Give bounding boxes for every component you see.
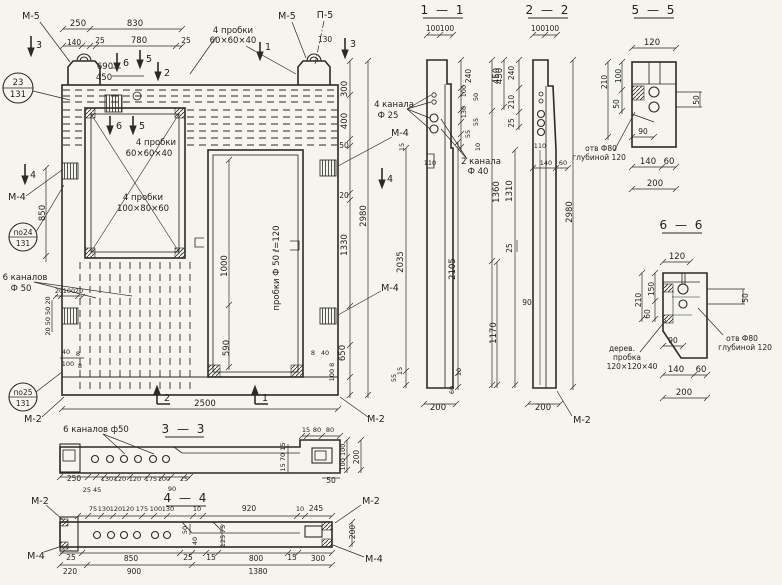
- series-number: 131: [10, 90, 26, 100]
- channel-note: 6 каналов: [3, 273, 48, 283]
- dim-label: 245: [309, 504, 324, 513]
- dim-label: 8: [311, 349, 315, 357]
- embed-callout: М-2: [31, 496, 49, 507]
- cut-number: 1: [262, 393, 268, 404]
- dim-label: 100: [460, 85, 468, 97]
- dim-label: 175: [136, 505, 148, 513]
- section-6-6: [639, 259, 745, 401]
- cut-number: 2: [164, 68, 170, 79]
- dim-label: 1380: [248, 567, 267, 576]
- dim-label: 15: [206, 553, 216, 562]
- dim-label: 780: [131, 36, 147, 46]
- plug-note: 120×120×40: [607, 362, 658, 371]
- dim-label: 100: [150, 505, 162, 513]
- cut-number: 6: [116, 121, 122, 132]
- dim-label: 60: [643, 309, 652, 319]
- dim-label: 800: [249, 554, 264, 563]
- dim-label: 15: [398, 143, 406, 151]
- dim-label: 40: [62, 348, 70, 356]
- dim-label: 1170: [489, 322, 499, 344]
- dim-label: 90: [522, 298, 532, 307]
- dim-label: 120: [669, 252, 685, 262]
- hole-f80: [649, 87, 659, 97]
- dim-label: 100: [62, 360, 74, 368]
- dim-label: 900: [127, 567, 142, 576]
- dim-label: 60: [559, 159, 567, 167]
- dim-label: 830: [127, 19, 143, 29]
- dim-label: 15: [287, 553, 297, 562]
- dim-label: 2035: [396, 251, 406, 273]
- dim-label: 120: [644, 38, 660, 48]
- section-markers: [22, 36, 385, 404]
- channel-lines: [80, 262, 190, 392]
- dim-label: 50: [472, 93, 480, 101]
- dim-label: 8: [78, 362, 82, 370]
- section-2-2: [494, 32, 576, 416]
- embed-callout: М-4: [381, 283, 399, 294]
- dim-label: 130: [318, 35, 333, 44]
- dim-label: 55: [390, 374, 398, 382]
- dim-label: 75: [89, 505, 97, 513]
- dim-label: 120: [129, 475, 141, 483]
- dimension-lines: [605, 45, 702, 192]
- dim-label: 100 8: [328, 363, 336, 382]
- dim-label: 140: [67, 38, 82, 47]
- plug-note: 60×60×40: [126, 149, 173, 159]
- embed-callout: М-5: [278, 11, 296, 22]
- edge-embed: [320, 160, 336, 176]
- plug-note: 4 пробки: [136, 138, 176, 148]
- dim-label: 25: [183, 553, 193, 562]
- dim-label: 690: [97, 62, 113, 72]
- dim-label: 2980: [565, 201, 575, 223]
- dim-label: 25: [505, 243, 514, 253]
- dim-label: 130: [460, 106, 468, 118]
- embed-callout: М-2: [573, 415, 591, 426]
- dim-label: 850: [124, 554, 139, 563]
- section-1-1: [403, 32, 495, 407]
- channel-note: 2 канала: [461, 157, 501, 167]
- hole-f80: [649, 102, 659, 112]
- dim-label: 120: [110, 505, 122, 513]
- embed-callout: М-4: [391, 128, 409, 139]
- channel-note: Ф 50: [11, 284, 32, 294]
- section-4-4-labels: М-2 4 — 4 М-2 75 130 120 120 175 100 130…: [27, 491, 383, 576]
- plug-note: 100×80×60: [117, 204, 169, 214]
- section-title: 6 — 6: [660, 218, 705, 232]
- edge-embed: [62, 308, 78, 324]
- dim-label: 240: [464, 69, 473, 84]
- dim-label: 450: [495, 68, 505, 84]
- blueprint-sheet: М-5 3 250 830 140 25 780 25 690 6 5 2 45…: [0, 0, 782, 585]
- corner-plug: [291, 365, 303, 377]
- corner-plug: [208, 365, 220, 377]
- dim-label: 140: [640, 157, 656, 167]
- dim-label: 50: [692, 95, 701, 105]
- cut-number: 5: [146, 54, 152, 65]
- dim-label: 10: [296, 505, 304, 513]
- dim-label: 10: [193, 505, 201, 513]
- cut-number: 1: [265, 42, 271, 53]
- cut-number: 4: [387, 174, 393, 185]
- dim-label: 1330: [340, 234, 350, 256]
- channel-note: Ф 40: [468, 167, 489, 177]
- section-title: 1 — 1: [421, 3, 466, 17]
- dim-label: 1000: [220, 255, 230, 277]
- plug-note: дерев.: [609, 344, 635, 353]
- hole-note: отв Ф80: [726, 334, 758, 343]
- channel-f40: [430, 114, 438, 122]
- channel-f40: [430, 125, 438, 133]
- hole-note: отв Ф80: [585, 144, 617, 153]
- channel-note: Ф 25: [378, 111, 399, 121]
- dim-label: 20: [339, 191, 349, 200]
- edge-embed: [320, 308, 336, 324]
- dim-label: 300: [311, 554, 326, 563]
- leader-lines: [26, 21, 467, 417]
- section-3-3: [57, 433, 364, 480]
- dim-label: 220: [63, 567, 78, 576]
- dim-label: 150: [647, 282, 656, 297]
- dim-label: 20 50 50 20: [44, 296, 52, 335]
- dim-label: 100: [531, 24, 546, 33]
- embed-callout: М-4: [365, 554, 383, 565]
- dim-label: 60: [664, 157, 675, 167]
- dim-label: 100 100: [339, 444, 347, 471]
- channel-note: 4 канала: [374, 100, 414, 110]
- section-5-5: [605, 45, 702, 192]
- dim-label: 100: [545, 24, 560, 33]
- dim-label: 25: [95, 36, 105, 45]
- dim-label: 130: [162, 505, 174, 513]
- dim-label: 100: [440, 24, 455, 33]
- elevation-labels: М-5 3 250 830 140 25 780 25 690 6 5 2 45…: [3, 10, 501, 425]
- dim-label: 200: [430, 403, 446, 413]
- dim-label: 90: [638, 127, 648, 136]
- dim-label: 100: [158, 475, 170, 483]
- dim-label: 55: [464, 130, 472, 138]
- corner-plug: [175, 248, 185, 258]
- dim-label: 90: [668, 336, 678, 345]
- channel-note: 6 каналов ф50: [63, 425, 129, 435]
- plug-note: 4 пробки: [123, 193, 163, 203]
- dim-label: 25: [180, 475, 188, 483]
- dim-label: 40: [321, 349, 329, 357]
- dim-label: 25: [507, 118, 516, 128]
- dim-label: 50: [741, 293, 750, 303]
- dim-label: 15: [302, 426, 310, 434]
- dim-label: 10: [474, 143, 482, 151]
- cut-number: 5: [139, 121, 145, 132]
- dim-label: 210: [507, 95, 516, 110]
- panel-drawing: М-5 3 250 830 140 25 780 25 690 6 5 2 45…: [0, 0, 782, 585]
- lifting-hook-right: [307, 54, 321, 61]
- section-title: 3 — 3: [162, 422, 207, 436]
- dim-label: 25: [181, 36, 191, 45]
- hole-note: глубиной 120: [572, 153, 626, 162]
- position-number: по24: [13, 228, 32, 237]
- dim-label: 250: [67, 474, 82, 483]
- corner-plug: [85, 108, 95, 118]
- dim-label: 125: [219, 535, 227, 547]
- embed-plate: [105, 95, 122, 112]
- section-title: 2 — 2: [526, 3, 571, 17]
- dim-label: 140: [540, 159, 552, 167]
- elevation-view: [3, 21, 467, 417]
- dim-label: 120: [114, 475, 126, 483]
- dim-label: 590: [222, 340, 232, 356]
- section-6-6-labels: 6 — 6 120 150 210 60 50 90 отв Ф80 глуби…: [607, 218, 772, 398]
- plug-note: 60×60×40: [210, 36, 257, 46]
- dimension-lines: [494, 32, 576, 416]
- dim-label: 200: [676, 388, 692, 398]
- cut-number: 4: [30, 170, 36, 181]
- dim-label: 2980: [359, 205, 369, 227]
- dim-label: 200: [352, 450, 361, 465]
- dim-label: 175: [145, 475, 157, 483]
- embed-callout: М-5: [22, 11, 40, 22]
- dim-label: 100: [426, 24, 441, 33]
- dim-label: 200: [348, 525, 357, 540]
- hatch-band: [63, 90, 337, 145]
- dim-label: 8: [76, 350, 80, 358]
- position-number: 23: [13, 78, 24, 88]
- dim-label: 10: [455, 368, 463, 376]
- section-3-3-labels: 6 каналов ф50 3 — 3 15 80 80 15 70 15 10…: [63, 422, 361, 494]
- dim-label: 210: [600, 75, 609, 90]
- dim-label: 140: [668, 365, 684, 375]
- corner-plug: [85, 248, 95, 258]
- lifting-block-right: [298, 61, 330, 85]
- dim-label: 15 70 15: [279, 443, 287, 472]
- plug-note: 4 пробки: [213, 26, 253, 36]
- section-1-1-labels: 1 — 1 100 100 240 100 50 130 55 55 10 45…: [390, 3, 502, 413]
- dim-label: 210: [634, 293, 643, 308]
- plug-note: пробки Ф 50 ℓ=120: [272, 225, 282, 310]
- section-title: 4 — 4: [164, 491, 209, 505]
- dim-label: 2105: [448, 258, 458, 280]
- dim-label: 130: [98, 505, 110, 513]
- cut-number: 6: [123, 58, 129, 69]
- plug-note: пробка: [613, 353, 641, 362]
- position-number: по25: [13, 388, 32, 397]
- lifting-hook-left: [77, 54, 91, 61]
- hole-f80: [678, 284, 688, 294]
- embed-callout: П-5: [317, 10, 334, 21]
- cut-number: 3: [36, 40, 42, 51]
- dim-label: 80: [326, 426, 334, 434]
- dimension-lines: [639, 259, 745, 401]
- dim-label: 250: [70, 19, 86, 29]
- series-number: 131: [16, 399, 31, 408]
- dim-label: 400: [340, 113, 350, 129]
- corner-plug: [175, 108, 185, 118]
- dim-label: 75: [219, 525, 227, 533]
- embed-callout: М-2: [367, 414, 385, 425]
- dimension-lines: [403, 32, 495, 407]
- dim-label: 130: [101, 475, 113, 483]
- dim-label: 920: [242, 504, 257, 513]
- dim-label: 100: [63, 287, 75, 295]
- dim-label: 120: [122, 505, 134, 513]
- cut-number: 2: [164, 393, 170, 404]
- dim-label: 2500: [194, 399, 216, 409]
- dim-label: 50: [339, 141, 349, 150]
- dim-label: 110: [424, 159, 436, 167]
- dim-label: 25: [66, 553, 76, 562]
- hole-note: глубиной 120: [718, 343, 772, 352]
- dim-label: 850: [38, 205, 48, 221]
- dim-label: 40: [191, 537, 199, 545]
- dim-label: 200: [535, 403, 551, 413]
- series-number: 131: [16, 239, 31, 248]
- dim-label: 200: [647, 179, 663, 189]
- dim-label: 1310: [505, 180, 515, 202]
- edge-embed: [62, 163, 78, 179]
- dim-label: 50: [181, 526, 189, 534]
- dim-label: 55: [472, 118, 480, 126]
- dim-label: 20: [75, 287, 83, 295]
- dim-label: 50: [326, 476, 336, 485]
- dim-label: 25 45: [83, 486, 102, 494]
- cut-number: 3: [350, 39, 356, 50]
- embed-callout: М-4: [27, 551, 45, 562]
- dim-label: 450: [96, 73, 112, 83]
- panel-outline: [62, 85, 338, 395]
- dim-label: 110: [534, 142, 546, 150]
- dim-label: 50: [612, 99, 621, 109]
- dim-label: 100: [614, 69, 623, 84]
- dim-label: 60: [696, 365, 707, 375]
- dim-label: 80: [313, 426, 321, 434]
- dim-label: 1360: [492, 181, 502, 203]
- embed-callout: М-2: [24, 414, 42, 425]
- dim-label: 240: [507, 66, 516, 81]
- formwork-marks: [195, 238, 299, 250]
- section-title: 5 — 5: [632, 3, 677, 17]
- embed-callout: М-4: [8, 192, 26, 203]
- dim-label: 60: [448, 386, 456, 394]
- dim-label: 650: [338, 345, 348, 361]
- embed-callout: М-2: [362, 496, 380, 507]
- dim-label: 300: [340, 81, 350, 97]
